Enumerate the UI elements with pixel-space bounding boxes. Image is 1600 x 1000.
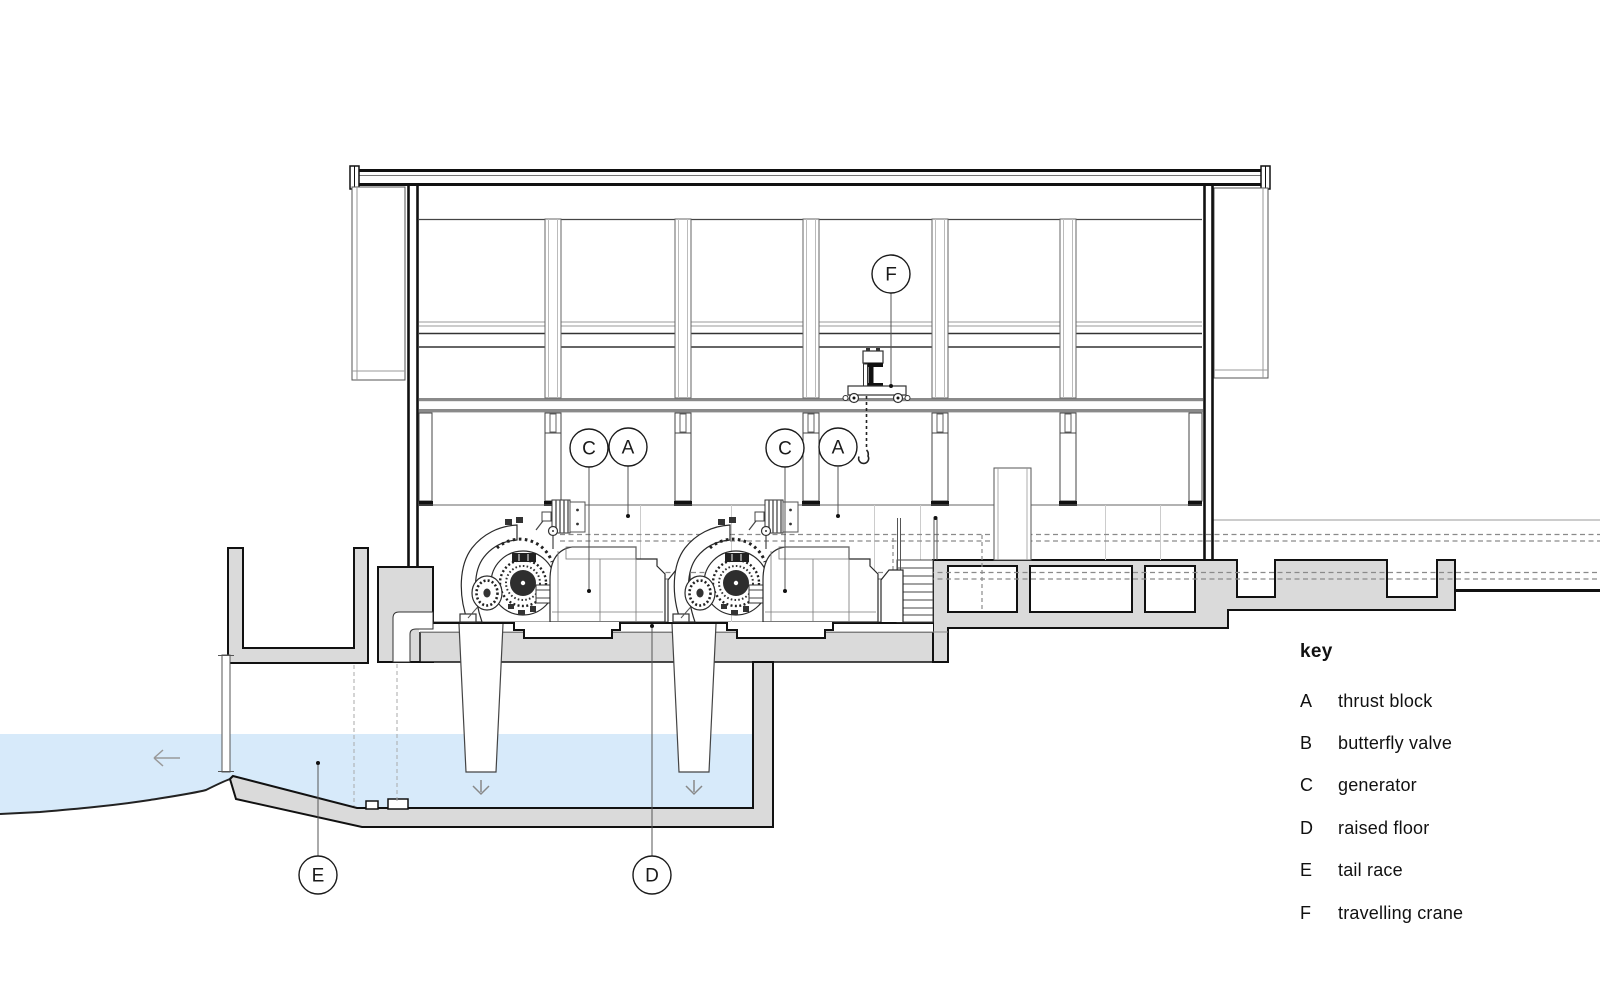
turbine-generator-unit-1 xyxy=(460,500,690,638)
key-letter: E xyxy=(1300,860,1338,881)
turbine-generator-unit-2 xyxy=(673,500,903,638)
key-letter: F xyxy=(1300,903,1338,924)
powerhouse-section-drawing: F C A C A E D key A thrust block B butte… xyxy=(0,0,1600,1000)
annotation-letter: E xyxy=(312,866,325,887)
roof xyxy=(350,166,1270,189)
key-label: tail race xyxy=(1338,860,1403,881)
key-row-raised-floor: D raised floor xyxy=(1300,807,1463,849)
key-letter: C xyxy=(1300,775,1338,796)
annotation-letter: D xyxy=(645,866,659,887)
left-eave-panel xyxy=(352,187,405,380)
key-title: key xyxy=(1300,638,1463,680)
duct-riser xyxy=(994,468,1031,560)
annotation-letter: A xyxy=(832,438,845,459)
annotation-letter: F xyxy=(885,265,897,286)
handrail-post-cap xyxy=(934,516,938,520)
key-label: thrust block xyxy=(1338,691,1432,712)
key-legend: key A thrust block B butterfly valve C g… xyxy=(1300,638,1463,934)
hall-columns xyxy=(419,413,1202,506)
annotation-letter: C xyxy=(778,439,792,460)
key-label: raised floor xyxy=(1338,818,1429,839)
annotation-letter: C xyxy=(582,439,596,460)
key-row-generator: C generator xyxy=(1300,765,1463,807)
window-mullions xyxy=(545,219,1076,398)
key-label: travelling crane xyxy=(1338,903,1463,924)
floor-notch xyxy=(388,799,408,809)
crane-hook-icon xyxy=(859,450,869,463)
key-row-butterfly-valve: B butterfly valve xyxy=(1300,722,1463,764)
key-label: butterfly valve xyxy=(1338,733,1452,754)
rail-beam xyxy=(419,409,1203,412)
key-letter: A xyxy=(1300,691,1338,712)
key-label: generator xyxy=(1338,775,1417,796)
key-row-travelling-crane: F travelling crane xyxy=(1300,892,1463,934)
key-row-tail-race: E tail race xyxy=(1300,850,1463,892)
floor-notch xyxy=(366,801,378,809)
annotation-letter: A xyxy=(622,438,635,459)
tailrace-gate-tank xyxy=(228,548,368,663)
key-letter: D xyxy=(1300,818,1338,839)
key-letter: B xyxy=(1300,733,1338,754)
key-row-thrust-block: A thrust block xyxy=(1300,680,1463,722)
right-eave-panel xyxy=(1214,188,1268,378)
